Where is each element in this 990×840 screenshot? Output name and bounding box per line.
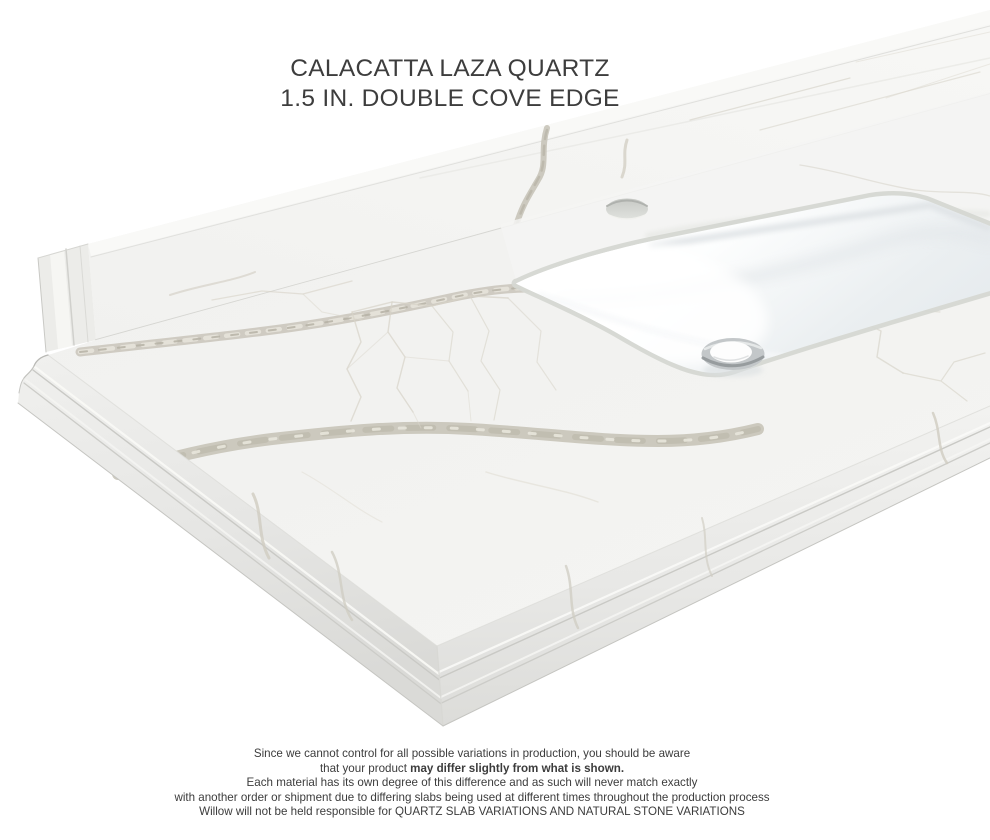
drain (702, 338, 765, 377)
disclaimer-line3: Each material has its own degree of this… (174, 776, 769, 791)
backsplash-end-cap (38, 244, 96, 352)
disclaimer-line5: Willow will not be held responsible for … (174, 805, 769, 820)
faucet-hole (606, 199, 648, 220)
disclaimer-line2: that your product may differ slightly fr… (174, 762, 769, 777)
countertop-illustration (0, 0, 990, 840)
product-title-line1: CALACATTA LAZA QUARTZ (280, 54, 619, 84)
product-title-line2: 1.5 IN. DOUBLE COVE EDGE (280, 84, 619, 114)
product-title: CALACATTA LAZA QUARTZ 1.5 IN. DOUBLE COV… (280, 54, 619, 114)
disclaimer-line2-bold: may differ slightly from what is shown. (410, 762, 624, 775)
disclaimer-line4: with another order or shipment due to di… (174, 791, 769, 806)
disclaimer-line1: Since we cannot control for all possible… (174, 747, 769, 762)
disclaimer-line2-normal: that your product (320, 762, 410, 775)
disclaimer: Since we cannot control for all possible… (174, 747, 769, 820)
product-image: CALACATTA LAZA QUARTZ 1.5 IN. DOUBLE COV… (0, 0, 990, 840)
